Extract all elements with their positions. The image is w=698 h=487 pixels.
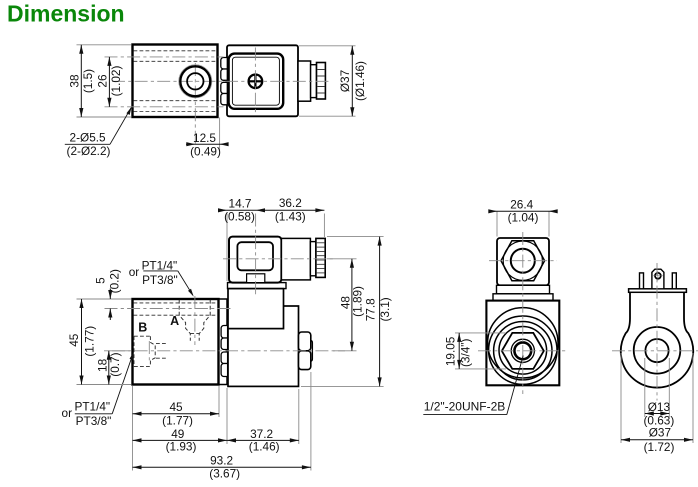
svg-text:36.2: 36.2 bbox=[279, 196, 302, 210]
svg-text:45: 45 bbox=[169, 400, 183, 414]
svg-text:(1.77): (1.77) bbox=[162, 414, 193, 428]
svg-text:26: 26 bbox=[95, 74, 109, 88]
svg-text:A: A bbox=[170, 314, 179, 328]
svg-text:(1.89): (1.89) bbox=[351, 286, 365, 317]
svg-text:(1.77): (1.77) bbox=[83, 326, 97, 357]
svg-text:(3.67): (3.67) bbox=[209, 466, 240, 480]
svg-text:38: 38 bbox=[67, 74, 81, 88]
svg-text:or: or bbox=[129, 265, 140, 279]
svg-text:or: or bbox=[62, 406, 73, 420]
svg-text:(0.2): (0.2) bbox=[108, 269, 122, 293]
svg-text:(1.43): (1.43) bbox=[275, 209, 306, 223]
svg-text:(0.49): (0.49) bbox=[190, 144, 221, 158]
svg-text:PT3/8": PT3/8" bbox=[142, 273, 178, 287]
svg-text:(3/4"): (3/4") bbox=[458, 339, 472, 368]
svg-text:(1.93): (1.93) bbox=[166, 440, 197, 454]
svg-text:(2-Ø2.2): (2-Ø2.2) bbox=[67, 144, 111, 158]
svg-text:93.2: 93.2 bbox=[210, 453, 233, 467]
svg-text:B: B bbox=[138, 320, 147, 334]
svg-text:(1.72): (1.72) bbox=[644, 440, 675, 454]
svg-text:45: 45 bbox=[67, 333, 81, 347]
svg-text:5: 5 bbox=[94, 277, 108, 284]
svg-text:(1.02): (1.02) bbox=[109, 66, 123, 97]
svg-text:Ø37: Ø37 bbox=[338, 70, 352, 92]
svg-text:12.5: 12.5 bbox=[193, 131, 216, 145]
svg-text:(3.1): (3.1) bbox=[378, 297, 392, 321]
svg-text:PT3/8": PT3/8" bbox=[76, 414, 112, 428]
svg-text:(0.58): (0.58) bbox=[224, 209, 255, 223]
svg-text:Ø13: Ø13 bbox=[648, 400, 671, 414]
svg-text:(1.04): (1.04) bbox=[508, 210, 539, 224]
svg-text:(0.7): (0.7) bbox=[108, 352, 122, 376]
svg-text:(Ø1.46): (Ø1.46) bbox=[353, 61, 367, 101]
svg-text:(1.46): (1.46) bbox=[249, 440, 280, 454]
svg-text:1/2"-20UNF-2B: 1/2"-20UNF-2B bbox=[424, 400, 506, 414]
svg-text:Ø37: Ø37 bbox=[649, 425, 671, 439]
svg-text:77.8: 77.8 bbox=[364, 298, 378, 321]
svg-text:2-Ø5.5: 2-Ø5.5 bbox=[70, 131, 107, 145]
svg-text:PT1/4": PT1/4" bbox=[74, 400, 110, 414]
svg-text:Dimension: Dimension bbox=[7, 1, 125, 27]
svg-text:(1.5): (1.5) bbox=[81, 69, 95, 93]
svg-text:19.05: 19.05 bbox=[444, 336, 458, 366]
